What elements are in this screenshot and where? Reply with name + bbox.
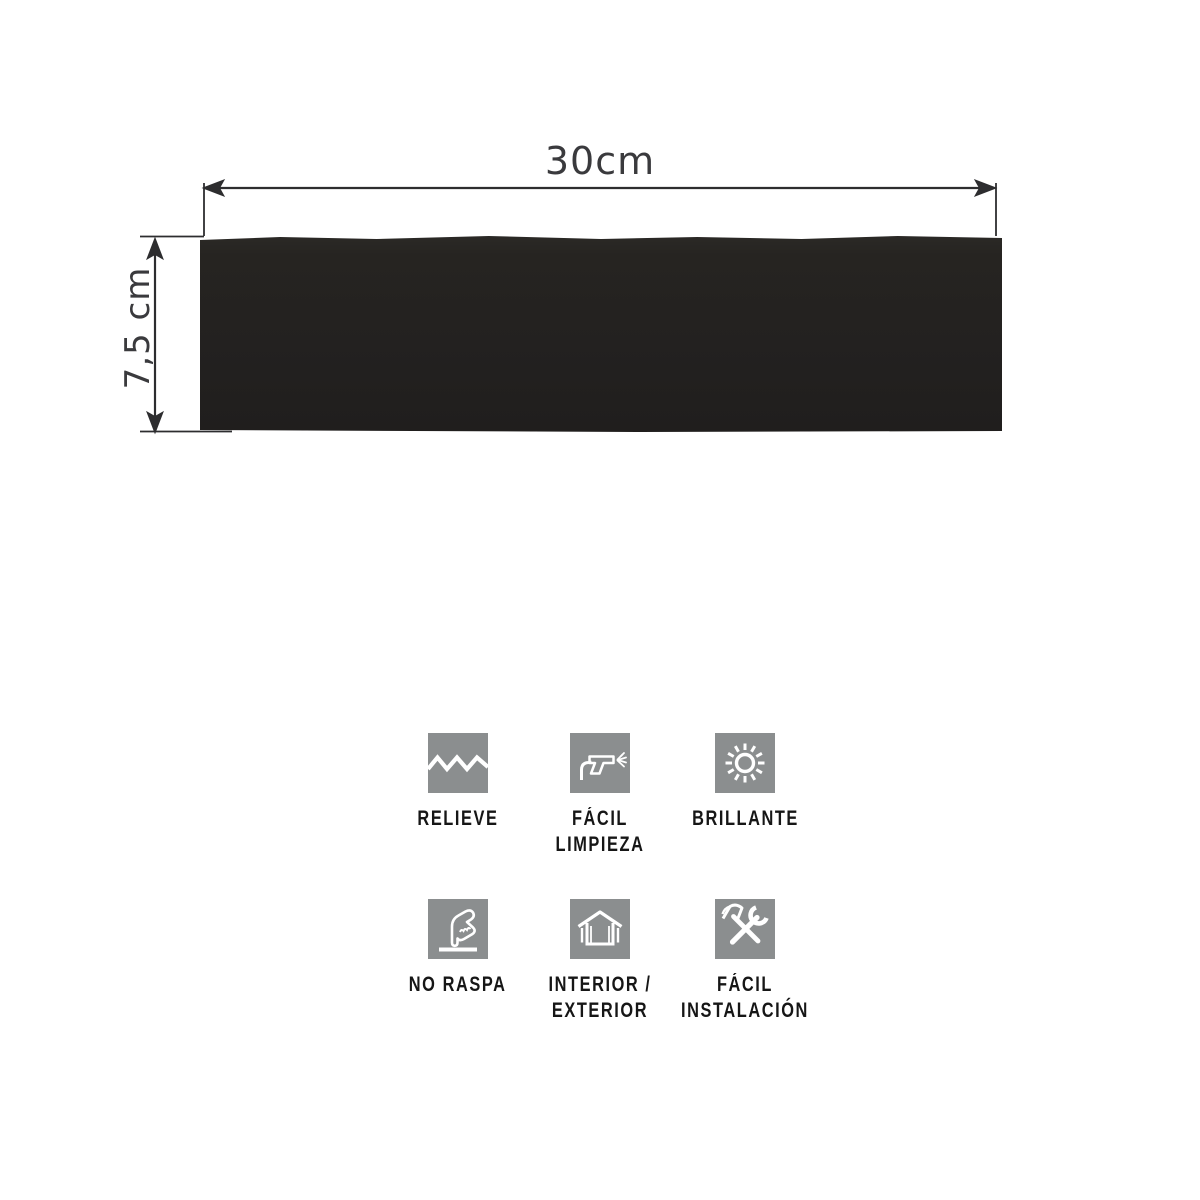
sun-icon [715, 733, 775, 793]
feature-label-line: RELIEVE [417, 806, 498, 832]
feature-label-line: INSTALACIÓN [681, 998, 809, 1024]
feature-label: BRILLANTE [692, 806, 799, 832]
feature-label-line: NO RASPA [409, 972, 507, 998]
feature-label-line: BRILLANTE [692, 806, 799, 832]
feature-label-line: FÁCIL [556, 806, 645, 832]
product-spec-sheet: 30cm 7,5 cm RELIEVE [0, 0, 1200, 1200]
tools-icon [715, 899, 775, 959]
tile-swatch [200, 236, 1002, 432]
feature-label: RELIEVE [417, 806, 498, 832]
hand-touch-icon [428, 899, 488, 959]
feature-label-line: FÁCIL [681, 972, 809, 998]
width-arrowhead-right [975, 180, 996, 196]
feature-label: FÁCIL INSTALACIÓN [681, 972, 809, 1024]
feature-label: FÁCIL LIMPIEZA [556, 806, 645, 858]
height-dimension-label: 7,5 cm [117, 228, 159, 428]
feature-label-line: LIMPIEZA [556, 832, 645, 858]
feature-label-line: EXTERIOR [549, 998, 652, 1024]
feature-brillante: BRILLANTE [660, 733, 830, 832]
width-dimension-label: 30cm [450, 141, 750, 181]
feature-facil-instalacion: FÁCIL INSTALACIÓN [660, 899, 830, 1024]
width-arrowhead-left [203, 180, 224, 196]
feature-label-line: INTERIOR / [549, 972, 652, 998]
feature-label: INTERIOR / EXTERIOR [549, 972, 652, 1024]
feature-label: NO RASPA [409, 972, 507, 998]
relief-zigzag-icon [428, 733, 488, 793]
spray-gun-icon [570, 733, 630, 793]
house-icon [570, 899, 630, 959]
